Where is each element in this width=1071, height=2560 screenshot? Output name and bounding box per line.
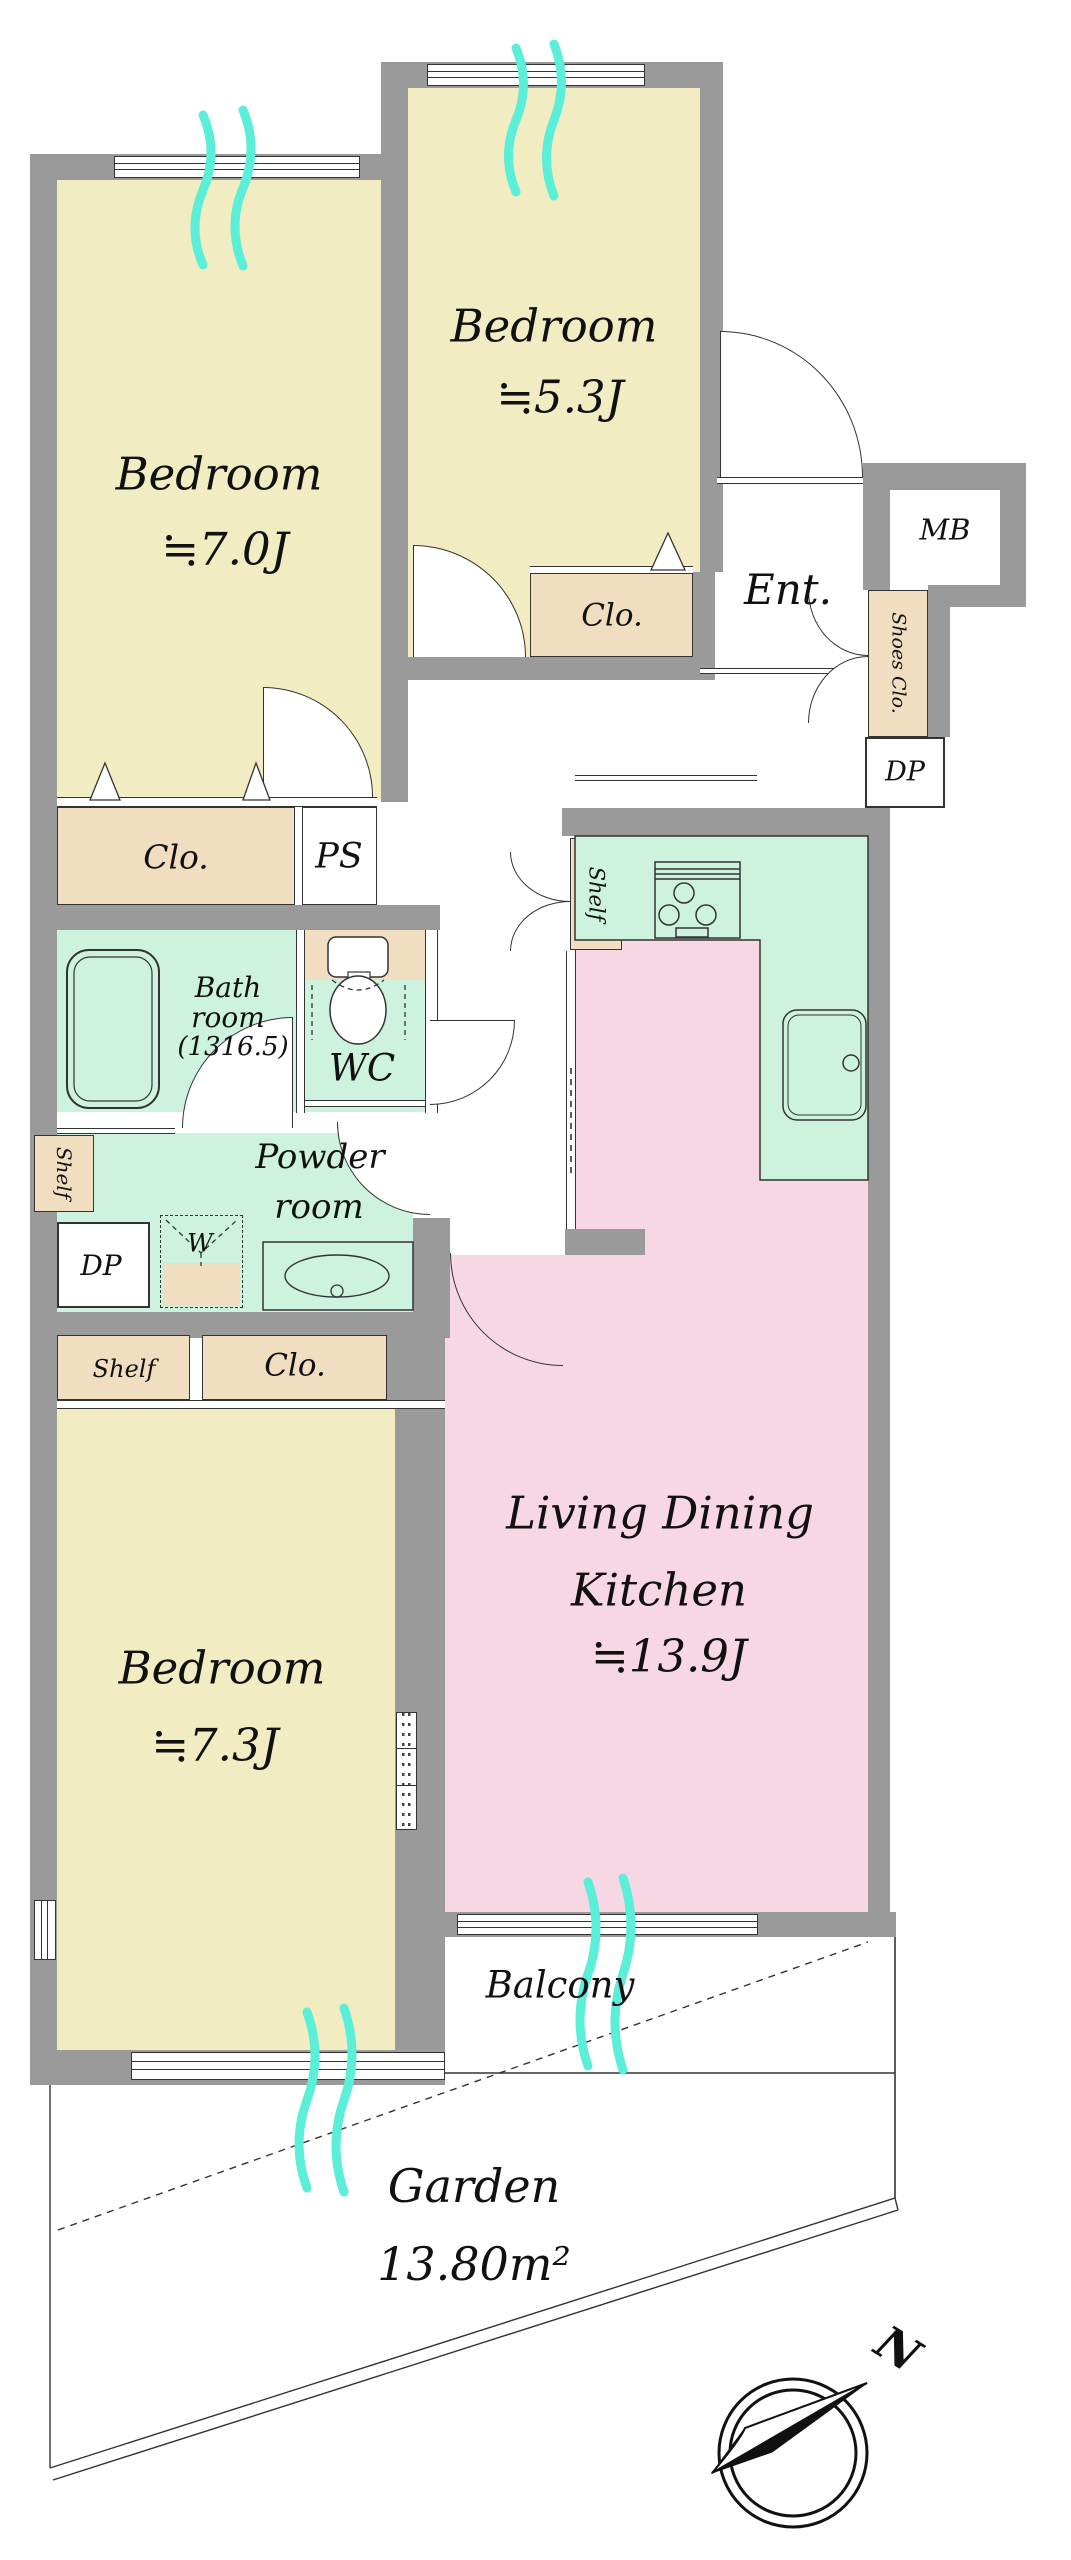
ldk-line1-label: Living Dining (506, 1491, 814, 1536)
powder-line1-label: Powder (255, 1140, 384, 1174)
track-closet73 (57, 1400, 445, 1409)
entrance-label: Ent. (744, 569, 832, 611)
wall-bath-wc-divider (296, 930, 305, 1113)
window-bedroom73-south (131, 2052, 445, 2080)
compass-north-label: N (868, 2318, 928, 2379)
meter-box-label: MB (919, 516, 970, 545)
bedroom73-size-label: ≒7.3J (151, 1723, 278, 1768)
stove-icon (655, 862, 740, 938)
compass-icon (712, 2379, 867, 2527)
washer-label: W (187, 1231, 213, 1256)
wall-kitchen-right (868, 808, 890, 1912)
window-ldk-balcony (457, 1914, 758, 1935)
powder-line2-label: room (274, 1190, 363, 1224)
ldk-line2-label: Kitchen (571, 1568, 747, 1613)
bedroom53-name-label: Bedroom (451, 304, 658, 349)
track-closet70 (57, 797, 377, 807)
wall-bath-south (57, 1128, 175, 1134)
door-kitchen-shelf-upper (510, 852, 570, 902)
window-bedroom73-west (34, 1900, 56, 1960)
window-bedroom53 (427, 64, 645, 86)
garden-name-label: Garden (388, 2163, 560, 2209)
wall-shoes-right (928, 585, 950, 737)
pipe-space-label: PS (315, 840, 363, 875)
bathroom-line2-label: room (191, 1004, 265, 1032)
wc-tank-band (304, 930, 425, 980)
step-hall (575, 775, 757, 781)
bedroom53-size-label: ≒5.3J (496, 375, 623, 420)
bedroom73-name-label: Bedroom (119, 1646, 326, 1691)
wall-below-clo-ps (30, 905, 440, 930)
room-ldk-east (760, 1180, 868, 1912)
wall-wc-south (296, 1100, 438, 1107)
door-entrance (720, 331, 863, 477)
garden-area-label: 13.80m² (377, 2241, 571, 2287)
closet53-label: Clo. (581, 601, 643, 632)
window-bedroom73-east (396, 1712, 417, 1830)
shelf73-label: Shelf (93, 1357, 156, 1381)
bathroom-line3-label: (1316.5) (177, 1034, 288, 1060)
shelf-powder-label: Shelf (54, 1147, 74, 1199)
door-kitchen-shelf-lower (510, 901, 570, 951)
kitchen-sink-icon (783, 1010, 866, 1120)
wall-bedroom53-right (700, 62, 723, 572)
shoes-closet-label: Shoes Clo. (889, 612, 908, 714)
wall-left-outer (30, 154, 57, 2085)
partition-hall-ldk (566, 950, 576, 1229)
dp-entrance-label: DP (885, 759, 925, 786)
closet70-label: Clo. (143, 841, 209, 874)
wall-kitchen-top (562, 808, 890, 836)
door-wc (430, 1020, 515, 1105)
room-ldk-main (575, 940, 760, 1912)
wall-below-closet53 (402, 657, 715, 680)
wall-mb-left (863, 463, 890, 590)
wc-label: WC (329, 1050, 395, 1087)
bedroom70-size-label: ≒7.0J (161, 527, 288, 572)
ldk-size-label: ≒13.9J (591, 1634, 747, 1679)
door-shoes-closet-lower (808, 656, 868, 723)
bathroom-line1-label: Bath (195, 974, 262, 1002)
wall-bedroom-divider (381, 62, 408, 802)
balcony-label: Balcony (486, 1967, 635, 2004)
bedroom70-name-label: Bedroom (116, 452, 323, 497)
window-bedroom70 (114, 156, 360, 178)
closet73-label: Clo. (264, 1351, 326, 1382)
shelf-kitchen-label: Shelf (586, 867, 607, 922)
threshold-entrance (717, 477, 863, 484)
dp-powder-label: DP (80, 1252, 121, 1280)
floor-plan: Bedroom ≒7.0J Bedroom ≒5.3J Clo. Ent. MB… (0, 0, 1071, 2560)
track-closet53 (530, 566, 693, 574)
wall-ldk-door-stub (565, 1229, 645, 1255)
